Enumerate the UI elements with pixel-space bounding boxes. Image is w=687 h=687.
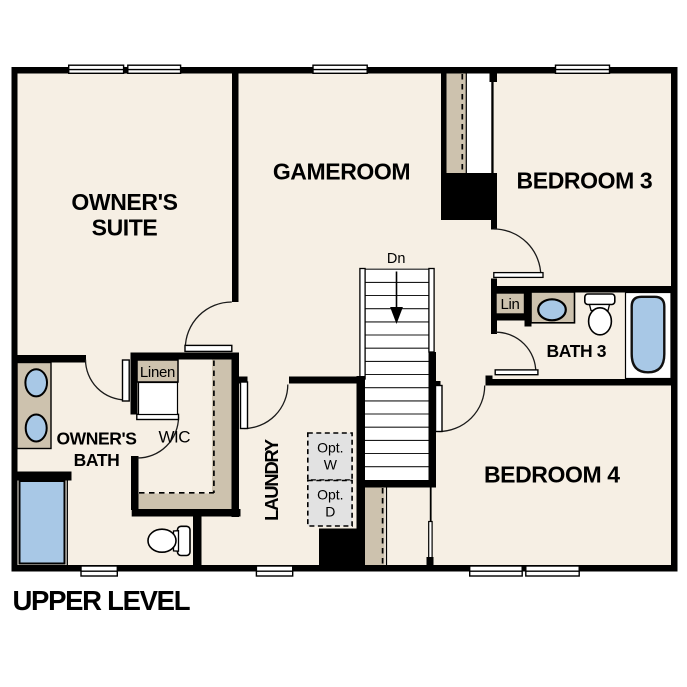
svg-text:BEDROOM 4: BEDROOM 4 <box>484 462 620 488</box>
svg-text:Dn: Dn <box>387 251 406 267</box>
svg-text:OWNER'S: OWNER'S <box>56 429 136 449</box>
svg-text:Lin: Lin <box>500 296 519 313</box>
svg-text:Linen: Linen <box>140 364 175 381</box>
svg-text:BATH: BATH <box>74 450 120 470</box>
svg-text:OWNER'S: OWNER'S <box>71 189 177 215</box>
svg-text:GAMEROOM: GAMEROOM <box>273 159 410 185</box>
svg-text:W: W <box>324 457 338 473</box>
svg-text:Opt.: Opt. <box>317 440 343 456</box>
svg-text:SUITE: SUITE <box>92 215 158 241</box>
svg-text:LAUNDRY: LAUNDRY <box>261 438 282 521</box>
svg-text:BATH 3: BATH 3 <box>547 341 607 361</box>
svg-text:BEDROOM 3: BEDROOM 3 <box>517 168 653 194</box>
svg-text:WIC: WIC <box>159 428 191 447</box>
svg-text:Opt.: Opt. <box>317 487 343 503</box>
svg-text:D: D <box>325 504 335 520</box>
svg-text:UPPER LEVEL: UPPER LEVEL <box>13 585 190 616</box>
